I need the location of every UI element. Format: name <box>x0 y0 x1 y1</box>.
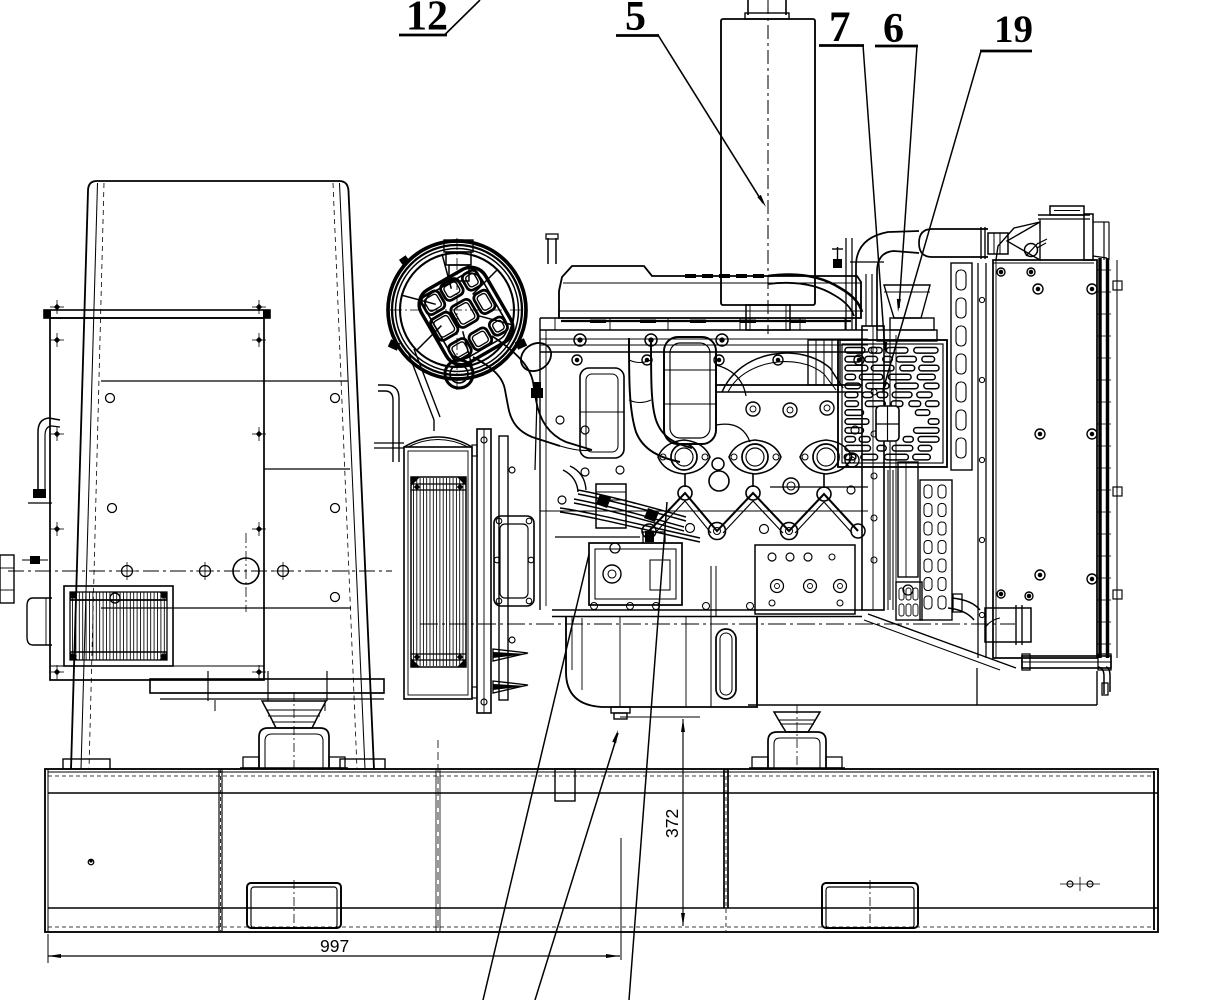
svg-text:19: 19 <box>994 8 1033 51</box>
svg-text:372: 372 <box>662 809 682 838</box>
svg-text:5: 5 <box>625 0 646 40</box>
svg-text:12: 12 <box>406 0 448 40</box>
svg-text:997: 997 <box>320 936 349 956</box>
svg-text:7: 7 <box>829 4 851 51</box>
